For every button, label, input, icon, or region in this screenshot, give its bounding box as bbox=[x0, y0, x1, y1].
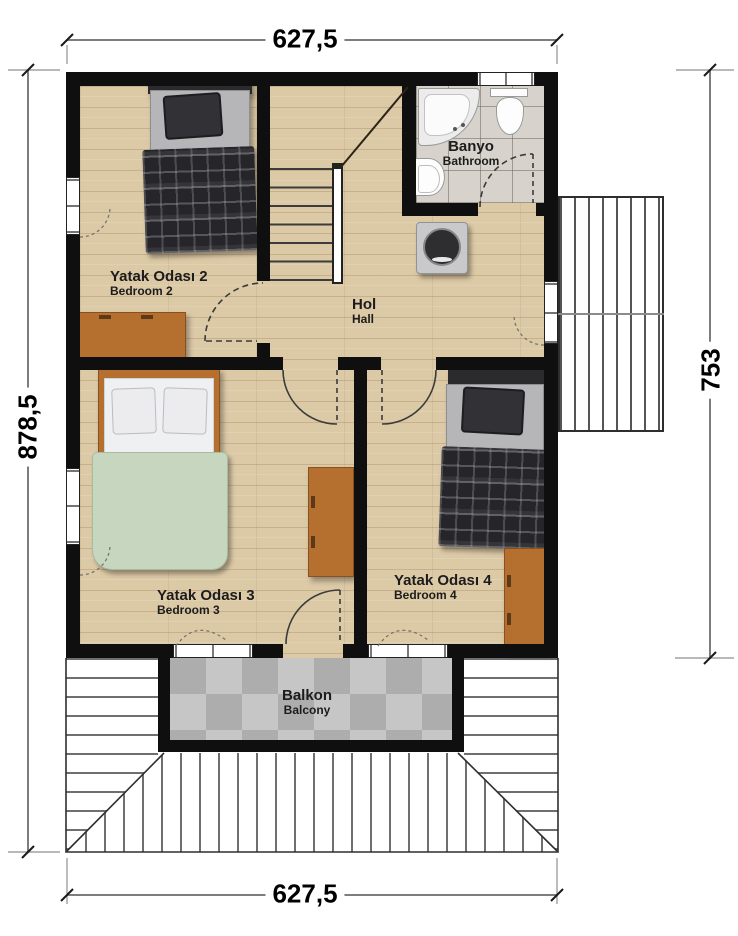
balcony-name-tr: Balkon bbox=[282, 688, 332, 704]
bed3-pillow-left bbox=[111, 387, 157, 435]
dimension-left-label: 878,5 bbox=[13, 387, 44, 466]
toilet bbox=[490, 88, 528, 97]
bathroom-name-en: Bathroom bbox=[443, 155, 500, 168]
wall-mid-c bbox=[436, 357, 544, 370]
wall-bathroom-bottom-a bbox=[402, 203, 478, 216]
wall-left bbox=[66, 72, 80, 658]
dimension-right-label: 753 bbox=[696, 341, 727, 398]
bed3-dresser bbox=[308, 467, 354, 577]
staircase-treads bbox=[268, 168, 334, 282]
bed4-dresser bbox=[504, 548, 548, 652]
bedroom4-name-en: Bedroom 4 bbox=[394, 589, 492, 602]
window-bedroom2-left bbox=[66, 177, 80, 235]
wall-divider bbox=[354, 370, 367, 644]
wall-balcony-right bbox=[452, 658, 464, 752]
window-bathroom-top bbox=[477, 72, 535, 86]
washing-machine bbox=[416, 222, 468, 274]
room-label-bedroom4: Yatak Odası 4 Bedroom 4 bbox=[394, 573, 492, 601]
room-label-balcony: Balkon Balcony bbox=[282, 688, 332, 716]
bed2-dresser bbox=[70, 312, 186, 360]
bedroom2-name-tr: Yatak Odası 2 bbox=[110, 269, 208, 285]
bed2-pillow bbox=[163, 92, 224, 140]
sink bbox=[413, 158, 445, 196]
bedroom2-name-en: Bedroom 2 bbox=[110, 285, 208, 298]
window-hall-right bbox=[544, 281, 558, 344]
bed3-blanket bbox=[92, 452, 228, 570]
wall-mid-b bbox=[338, 357, 381, 370]
wall-balcony-left bbox=[158, 658, 170, 752]
hall-name-en: Hall bbox=[352, 313, 376, 326]
wall-balcony-bottom bbox=[158, 740, 464, 752]
window-bedroom4-balcony bbox=[368, 644, 448, 658]
wall-hall-a bbox=[257, 86, 270, 281]
bay-roof bbox=[558, 196, 664, 432]
dimension-bottom-label: 627,5 bbox=[265, 879, 344, 910]
bed4-pillow bbox=[461, 386, 525, 435]
floor-plan: Yatak Odası 2 Bedroom 2 Hol Hall Banyo B… bbox=[0, 0, 738, 936]
dimension-top-label: 627,5 bbox=[265, 24, 344, 55]
staircase-railing bbox=[332, 163, 343, 284]
bedroom3-name-tr: Yatak Odası 3 bbox=[157, 588, 255, 604]
bedroom4-name-tr: Yatak Odası 4 bbox=[394, 573, 492, 589]
window-bedroom3-left bbox=[66, 468, 80, 545]
bathroom-name-tr: Banyo bbox=[443, 139, 500, 155]
room-label-hall: Hol Hall bbox=[352, 297, 376, 325]
wall-right bbox=[544, 72, 558, 658]
room-label-bedroom2: Yatak Odası 2 Bedroom 2 bbox=[110, 269, 208, 297]
wall-bathroom-bottom-b bbox=[536, 203, 558, 216]
room-label-bathroom: Banyo Bathroom bbox=[443, 139, 500, 167]
bed4-blanket bbox=[438, 446, 551, 550]
wall-mid-a bbox=[80, 357, 283, 370]
bed2-blanket bbox=[142, 146, 258, 254]
balcony-name-en: Balcony bbox=[282, 704, 332, 717]
bed3-pillow-right bbox=[162, 387, 208, 435]
hall-name-tr: Hol bbox=[352, 297, 376, 313]
window-bedroom3-balcony bbox=[173, 644, 253, 658]
room-label-bedroom3: Yatak Odası 3 Bedroom 3 bbox=[157, 588, 255, 616]
wall-bathroom-left bbox=[402, 86, 416, 204]
bedroom3-name-en: Bedroom 3 bbox=[157, 604, 255, 617]
